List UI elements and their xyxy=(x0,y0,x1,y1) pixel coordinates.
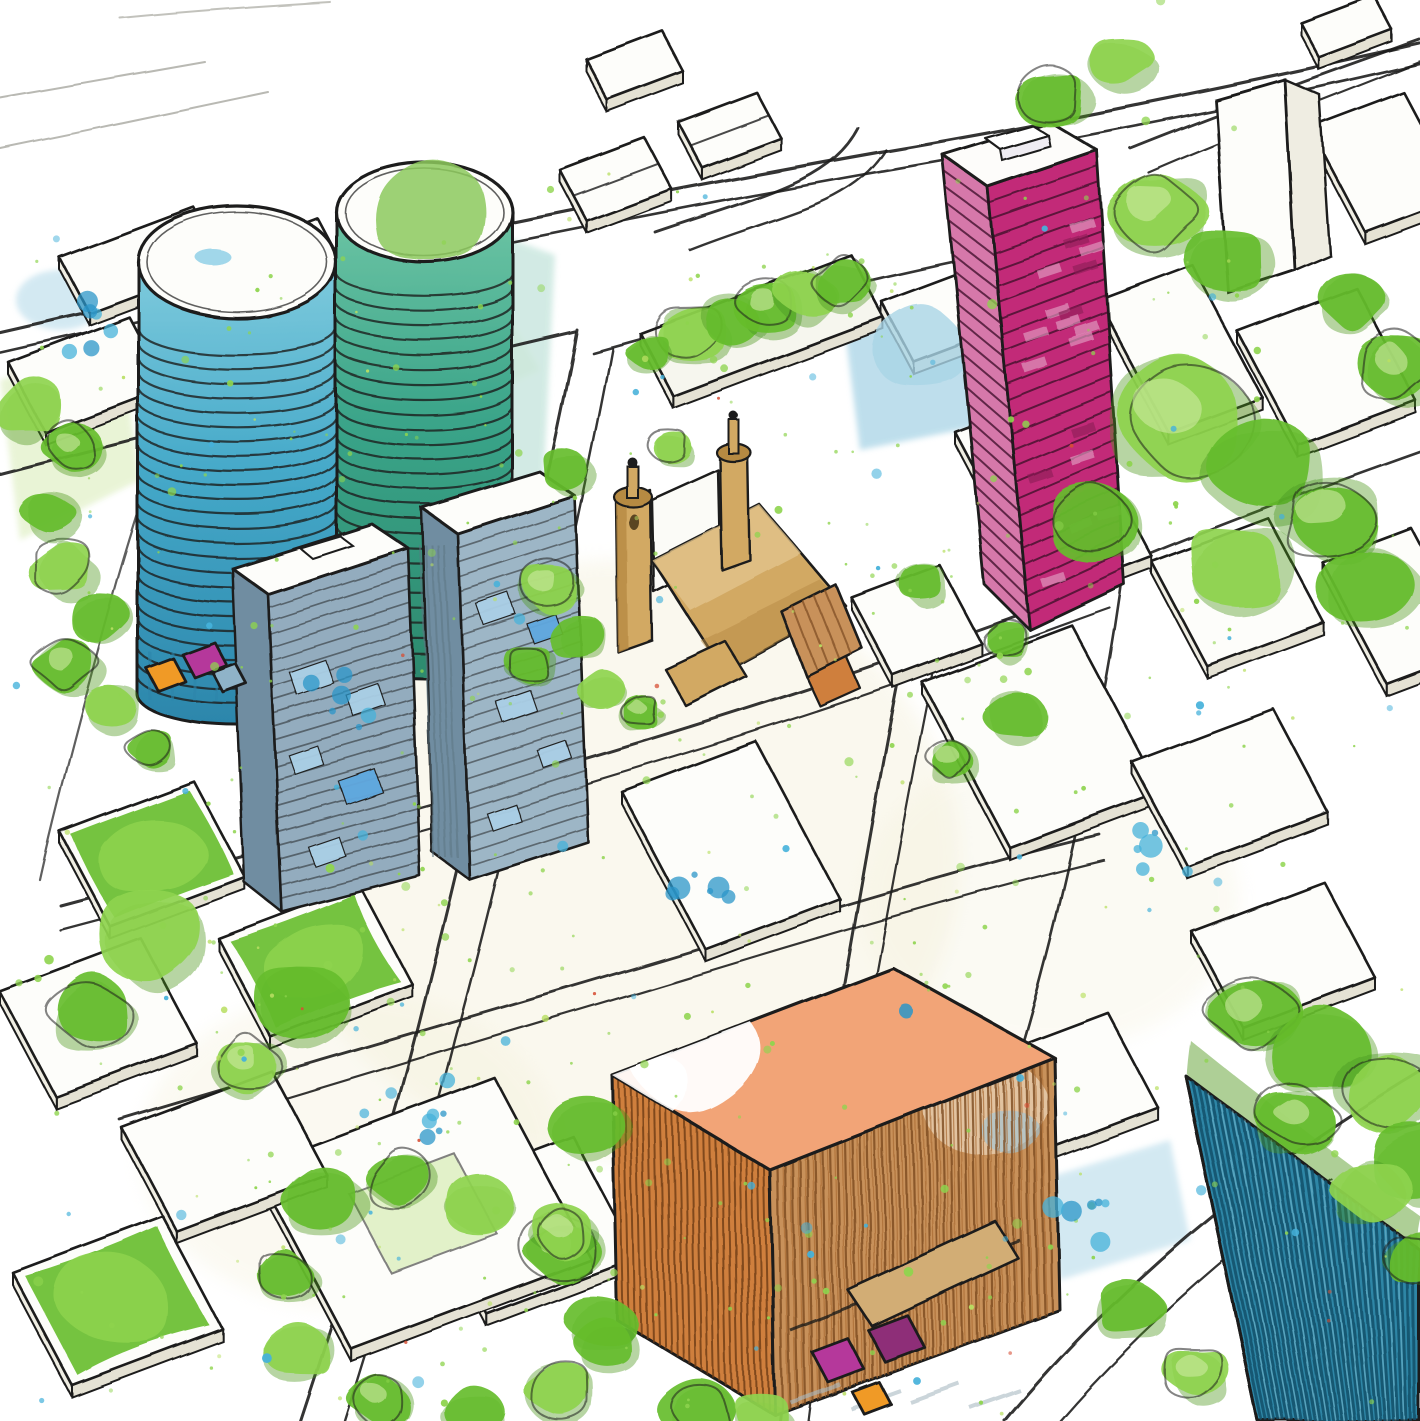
speckle xyxy=(567,217,572,222)
speckle xyxy=(1341,621,1344,624)
speckle xyxy=(1213,906,1219,912)
speckle xyxy=(157,551,159,553)
speckle xyxy=(230,778,233,781)
speckle xyxy=(633,389,639,395)
speckle xyxy=(355,1125,359,1129)
speckle xyxy=(684,1237,686,1239)
speckle xyxy=(744,886,749,891)
church-spire-2 xyxy=(720,448,750,570)
speckle xyxy=(325,433,328,436)
speckle xyxy=(1014,809,1019,814)
speckle xyxy=(1070,444,1074,448)
speckle xyxy=(1243,669,1246,672)
speckle xyxy=(217,1354,221,1358)
speckle xyxy=(770,1041,775,1046)
speckle xyxy=(40,346,44,350)
speckle xyxy=(1042,226,1048,232)
speckle xyxy=(956,863,965,872)
speckle xyxy=(1185,847,1188,850)
speckle xyxy=(1171,426,1177,432)
speckle xyxy=(280,297,283,300)
speckle xyxy=(405,433,408,436)
speckle xyxy=(844,757,853,766)
speckle xyxy=(393,978,396,981)
speckle xyxy=(446,1130,449,1133)
speckle xyxy=(281,1245,285,1249)
speckle xyxy=(227,326,232,331)
blue-splash xyxy=(1101,1199,1109,1207)
speckle xyxy=(1074,790,1078,794)
speckle xyxy=(366,369,369,372)
speckle xyxy=(943,550,946,553)
speckle xyxy=(67,1212,71,1216)
speckle xyxy=(747,1182,755,1190)
speckle xyxy=(290,438,293,441)
speckle xyxy=(964,677,971,684)
speckle xyxy=(728,1307,732,1311)
speckle xyxy=(1196,701,1204,709)
speckle xyxy=(1054,521,1064,531)
speckle xyxy=(441,899,448,906)
speckle xyxy=(977,502,980,505)
blue-splash xyxy=(332,686,351,705)
speckle xyxy=(508,281,512,285)
speckle xyxy=(510,967,515,972)
speckle xyxy=(558,526,561,529)
speckle xyxy=(1074,1086,1080,1092)
speckle xyxy=(468,958,472,962)
speckle xyxy=(269,680,272,683)
speckle xyxy=(537,284,545,292)
speckle xyxy=(560,967,564,971)
spire-neck xyxy=(627,466,638,498)
speckle xyxy=(843,1392,847,1396)
speckle xyxy=(645,1179,652,1186)
speckle xyxy=(493,597,497,601)
speckle xyxy=(269,274,273,278)
blue-splash xyxy=(303,675,320,692)
speckle xyxy=(210,1366,213,1369)
speckle xyxy=(640,1285,645,1290)
speckle xyxy=(1138,427,1140,429)
speckle xyxy=(216,1055,221,1060)
speckle xyxy=(573,496,578,501)
speckle xyxy=(1242,745,1245,748)
spire-finial xyxy=(627,457,637,467)
speckle xyxy=(241,1056,246,1061)
speckle xyxy=(1196,1185,1206,1195)
speckle xyxy=(35,260,38,263)
speckle xyxy=(1093,512,1097,516)
speckle xyxy=(570,1062,573,1065)
speckle xyxy=(1387,359,1390,362)
speckle xyxy=(420,1030,426,1036)
speckle xyxy=(262,1353,272,1363)
speckle xyxy=(1228,628,1232,632)
speckle xyxy=(99,387,103,391)
speckle xyxy=(494,581,501,588)
speckle xyxy=(552,760,560,768)
speckle xyxy=(711,1011,714,1014)
speckle xyxy=(823,1288,830,1295)
speckle xyxy=(1127,461,1133,467)
speckle xyxy=(966,1129,970,1133)
speckle xyxy=(168,487,177,496)
speckle xyxy=(999,636,1002,639)
speckle xyxy=(909,375,912,378)
speckle xyxy=(54,1111,59,1116)
speckle xyxy=(1212,562,1218,568)
speckle xyxy=(676,190,679,193)
speckle xyxy=(1400,988,1403,991)
speckle xyxy=(53,235,60,242)
speckle xyxy=(164,996,169,1001)
speckle xyxy=(342,1295,345,1298)
speckle xyxy=(270,994,274,998)
speckle xyxy=(254,1186,257,1189)
speckle xyxy=(1227,636,1231,640)
speckle xyxy=(203,896,208,901)
speckle xyxy=(1006,534,1010,538)
speckle xyxy=(1231,125,1237,131)
speckle xyxy=(393,364,400,371)
speckle xyxy=(920,973,923,976)
speckle xyxy=(80,1291,83,1294)
speckle xyxy=(1022,421,1029,428)
blue-splash xyxy=(667,876,690,899)
speckle xyxy=(629,452,632,455)
speckle xyxy=(762,265,766,269)
speckle xyxy=(765,1218,769,1222)
speckle xyxy=(1087,329,1090,332)
speckle xyxy=(1328,1290,1332,1294)
speckle xyxy=(635,516,639,520)
speckle xyxy=(369,1211,373,1215)
speckle xyxy=(871,469,881,479)
speckle xyxy=(1000,1412,1004,1416)
speckle xyxy=(204,473,207,476)
speckle xyxy=(787,724,791,728)
speckle xyxy=(524,1308,528,1312)
speckle xyxy=(876,566,880,570)
speckle xyxy=(180,464,183,467)
speckle xyxy=(642,356,649,363)
speckle xyxy=(896,444,900,448)
speckle xyxy=(509,702,512,705)
speckle xyxy=(961,717,964,720)
speckle xyxy=(913,1377,921,1385)
speckle xyxy=(947,985,950,988)
speckle xyxy=(1369,1399,1374,1404)
speckle xyxy=(402,928,405,931)
speckle xyxy=(851,451,854,454)
speckle xyxy=(774,1284,782,1292)
speckle xyxy=(401,654,405,658)
blue-splash xyxy=(439,1073,455,1089)
speckle xyxy=(828,522,831,525)
speckle xyxy=(969,1305,974,1310)
speckle xyxy=(1149,877,1154,882)
speckle xyxy=(755,532,761,538)
blue-splash xyxy=(83,304,97,318)
speckle xyxy=(710,356,718,364)
speckle xyxy=(466,522,469,525)
speckle xyxy=(1229,803,1234,808)
speckle xyxy=(1254,347,1261,354)
spire-neck xyxy=(729,420,739,454)
speckle xyxy=(109,1323,115,1329)
speckle xyxy=(181,356,189,364)
speckle xyxy=(607,1032,610,1035)
speckle xyxy=(718,1201,722,1205)
speckle xyxy=(1285,1231,1288,1234)
speckle xyxy=(834,450,838,454)
speckle xyxy=(1327,1319,1331,1323)
speckle xyxy=(269,1180,272,1183)
speckle xyxy=(477,1077,481,1081)
speckle xyxy=(631,994,636,999)
speckle xyxy=(997,653,1003,659)
speckle xyxy=(625,1347,628,1350)
speckle xyxy=(924,981,928,985)
speckle xyxy=(941,1320,947,1326)
speckle xyxy=(482,1347,487,1352)
speckle xyxy=(948,549,951,552)
speckle xyxy=(689,277,693,281)
speckle xyxy=(514,1119,520,1125)
speckle xyxy=(33,1276,43,1286)
spire-shade xyxy=(616,499,628,652)
blue-splash xyxy=(691,872,697,878)
speckle xyxy=(904,1267,914,1277)
speckle xyxy=(986,1256,989,1259)
tree-canopy xyxy=(735,1393,788,1421)
speckle xyxy=(1213,641,1216,644)
speckle xyxy=(293,431,295,433)
speckle xyxy=(248,331,251,334)
speckle xyxy=(674,586,677,589)
speckle xyxy=(247,1159,250,1162)
speckle xyxy=(100,1062,103,1065)
watercolor-masterplan-illustration xyxy=(0,0,1420,1421)
blue-splash xyxy=(83,340,99,356)
speckle xyxy=(941,1185,949,1193)
speckle xyxy=(88,477,90,479)
masterplan-sketch xyxy=(0,0,1420,1421)
speckle xyxy=(767,1316,770,1319)
speckle xyxy=(908,589,912,593)
speckle xyxy=(182,788,188,794)
speckle xyxy=(401,751,404,754)
speckle xyxy=(784,433,788,437)
speckle xyxy=(1000,675,1008,683)
speckle xyxy=(513,540,518,545)
speckle xyxy=(442,933,450,941)
speckle xyxy=(748,939,751,942)
speckle xyxy=(478,304,483,309)
speckle xyxy=(907,692,913,698)
speckle xyxy=(339,476,345,482)
speckle xyxy=(1079,1173,1082,1176)
speckle xyxy=(750,795,754,799)
speckle xyxy=(285,995,287,997)
speckle xyxy=(1392,534,1395,537)
speckle xyxy=(1003,1236,1009,1242)
speckle xyxy=(526,1080,530,1084)
speckle xyxy=(353,1026,358,1031)
speckle xyxy=(494,853,497,856)
speckle xyxy=(206,802,210,806)
speckle xyxy=(220,971,223,974)
speckle xyxy=(696,274,700,278)
speckle xyxy=(441,1400,448,1407)
speckle xyxy=(1080,993,1086,999)
speckle xyxy=(955,179,960,184)
speckle xyxy=(730,401,733,404)
speckle xyxy=(355,311,358,314)
speckle xyxy=(420,669,423,672)
speckle xyxy=(834,658,837,661)
speckle xyxy=(334,785,339,790)
speckle xyxy=(216,1031,219,1034)
speckle xyxy=(744,1182,748,1186)
speckle xyxy=(684,1013,691,1020)
speckle xyxy=(845,563,848,566)
speckle xyxy=(492,1207,500,1215)
speckle xyxy=(413,802,416,805)
speckle xyxy=(1105,906,1108,909)
speckle xyxy=(1331,1150,1338,1157)
speckle xyxy=(122,376,125,379)
blue-splash xyxy=(329,708,336,715)
speckle xyxy=(221,1007,228,1014)
speckle xyxy=(809,373,816,380)
speckle xyxy=(568,1164,570,1166)
speckle xyxy=(100,923,103,926)
speckle xyxy=(1012,1219,1022,1229)
speckle xyxy=(745,983,750,988)
speckle xyxy=(89,510,92,513)
speckle xyxy=(811,1278,816,1283)
blue-splash xyxy=(1087,1200,1097,1210)
blue-splash xyxy=(336,667,352,683)
speckle xyxy=(890,289,894,293)
speckle xyxy=(1149,677,1152,680)
speckle xyxy=(942,983,948,989)
speckle xyxy=(965,972,971,978)
speckle xyxy=(1092,1256,1096,1260)
speckle xyxy=(176,1210,186,1220)
speckle xyxy=(1017,854,1022,859)
speckle xyxy=(398,873,401,876)
speckle xyxy=(160,922,167,929)
speckle xyxy=(881,335,883,337)
speckle xyxy=(983,925,988,930)
blue-splash xyxy=(420,1129,436,1145)
speckle xyxy=(119,693,122,696)
speckle xyxy=(675,1095,678,1098)
speckle xyxy=(340,256,345,261)
roof-splash xyxy=(196,250,232,266)
speckle xyxy=(1153,298,1156,301)
speckle xyxy=(240,666,243,669)
speckle xyxy=(240,766,243,769)
speckle xyxy=(88,514,92,518)
speckle xyxy=(438,904,441,907)
speckle xyxy=(950,1144,953,1147)
speckle xyxy=(1235,293,1239,297)
speckle xyxy=(955,890,959,894)
speckle xyxy=(209,442,215,448)
speckle xyxy=(312,1294,315,1297)
speckle xyxy=(738,1115,741,1118)
speckle xyxy=(988,1295,992,1299)
speckle xyxy=(607,172,610,175)
speckle xyxy=(1195,426,1197,428)
blue-splash xyxy=(707,888,713,894)
speckle xyxy=(301,1007,304,1010)
speckle xyxy=(227,380,233,386)
speckle xyxy=(613,1111,618,1116)
speckle xyxy=(329,1227,333,1231)
speckle xyxy=(664,1158,671,1165)
blue-splash xyxy=(104,324,119,339)
speckle xyxy=(1012,880,1019,887)
speckle xyxy=(499,463,503,467)
speckle xyxy=(253,418,256,421)
speckle xyxy=(990,475,997,482)
speckle xyxy=(211,940,215,944)
speckle xyxy=(34,975,41,982)
speckle xyxy=(1291,716,1295,720)
speckle xyxy=(1180,608,1184,612)
speckle xyxy=(459,1327,463,1331)
speckle xyxy=(1279,514,1285,520)
speckle xyxy=(1405,626,1409,630)
speckle xyxy=(717,397,720,400)
speckle xyxy=(782,845,789,852)
speckle xyxy=(935,659,939,663)
speckle xyxy=(763,1046,771,1054)
speckle xyxy=(927,989,930,992)
speckle xyxy=(610,1269,617,1276)
blue-splash xyxy=(1139,834,1163,858)
speckle xyxy=(950,575,953,578)
speckle xyxy=(1167,292,1169,294)
speckle xyxy=(533,1291,536,1294)
speckle xyxy=(111,627,114,630)
speckle xyxy=(275,558,279,562)
speckle xyxy=(1254,396,1260,402)
speckle xyxy=(707,851,710,854)
speckle xyxy=(412,1376,424,1388)
speckle xyxy=(757,721,760,724)
speckle xyxy=(686,321,689,324)
speckle xyxy=(48,786,51,789)
blue-splash xyxy=(62,344,77,359)
speckle xyxy=(660,699,665,704)
speckle xyxy=(1353,745,1355,747)
speckle xyxy=(979,1401,983,1405)
speckle xyxy=(1147,908,1151,912)
speckle xyxy=(335,1149,342,1156)
speckle xyxy=(428,549,436,557)
speckle xyxy=(660,375,664,379)
speckle xyxy=(775,506,783,514)
speckle xyxy=(1212,1181,1218,1187)
speckle xyxy=(359,1109,369,1119)
spire-finial xyxy=(730,412,739,421)
